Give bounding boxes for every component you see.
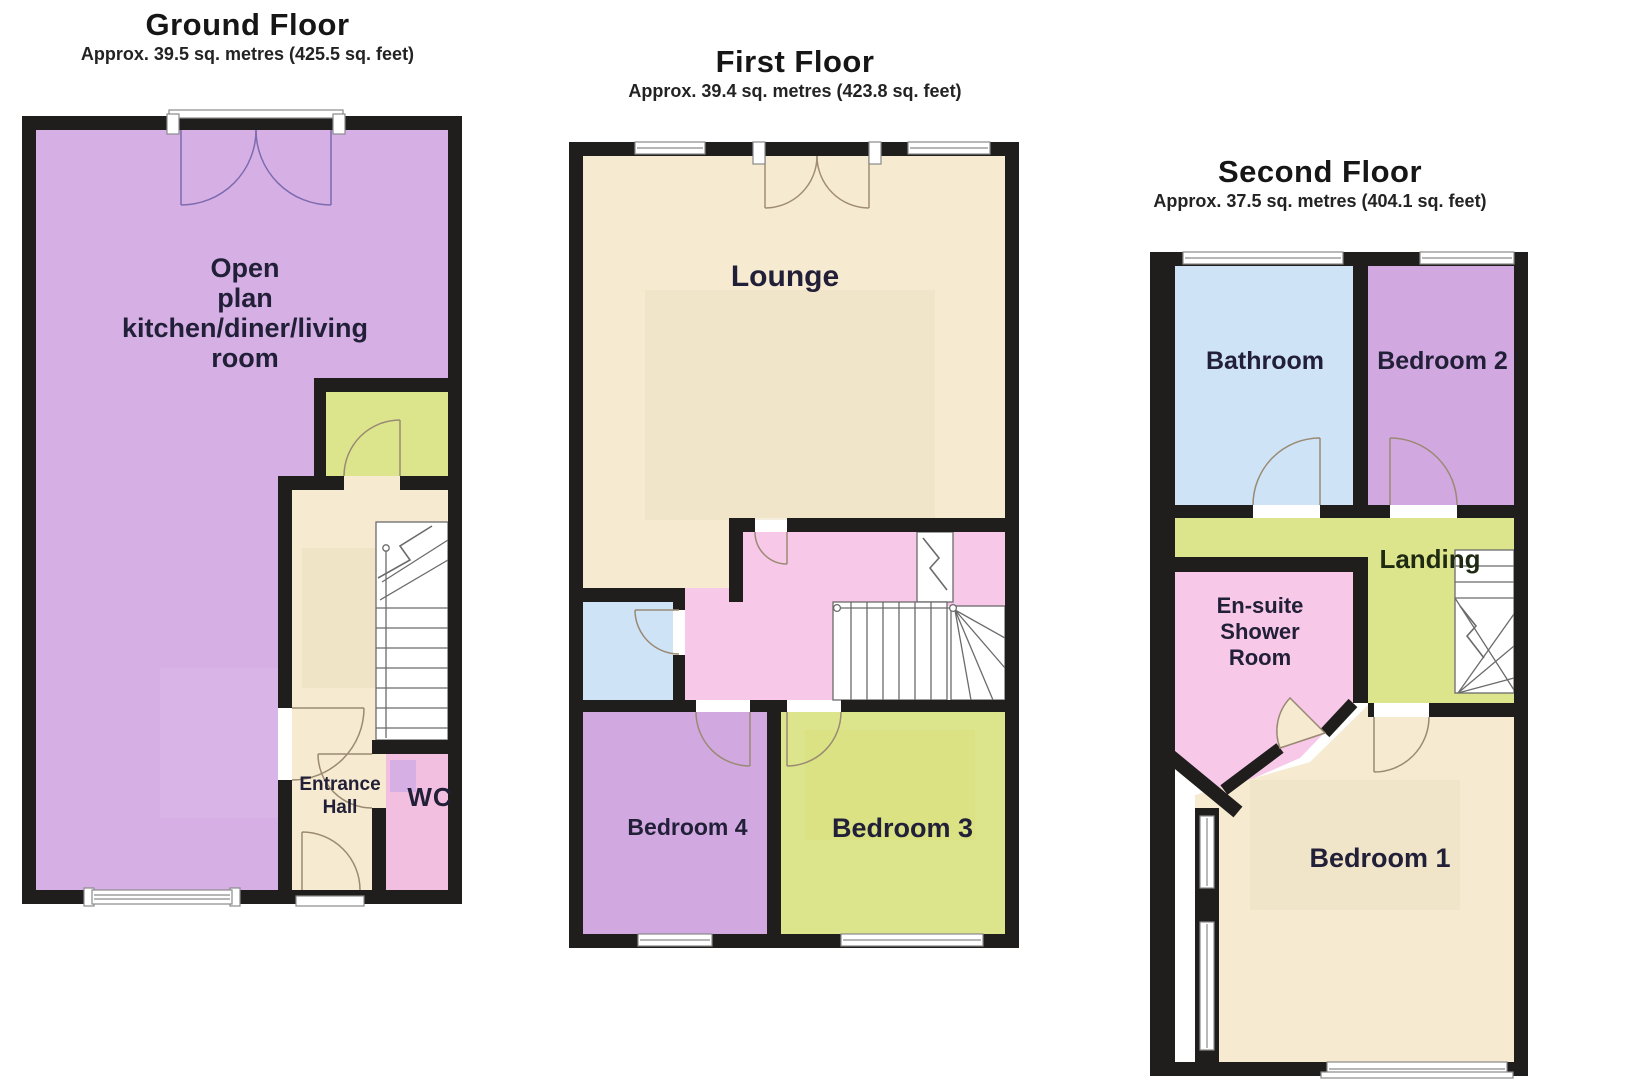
ground-floor-subtitle: Approx. 39.5 sq. metres (425.5 sq. feet) [20,42,475,66]
room-label-landing: Landing [1340,545,1520,574]
second-floor-wall-stub [1196,894,1218,916]
ensuite-line3: Room [1185,645,1335,671]
room-label-entrance-hall: Entrance Hall [270,773,410,819]
room-label-bedroom1: Bedroom 1 [1290,843,1470,873]
room-label-wc: WC [390,783,470,812]
first-floor-title: First Floor [565,45,1025,79]
room-label-bathroom: Bathroom [1175,347,1355,375]
open-plan-line3: kitchen/diner/living [30,313,460,343]
open-plan-line4: room [30,343,460,373]
ground-floor-stairs [376,522,448,740]
room-label-ensuite: En-suite Shower Room [1185,593,1335,671]
entrance-hall-line1: Entrance [270,773,410,796]
room-label-bedroom2: Bedroom 2 [1355,347,1530,375]
ensuite-line2: Shower [1185,619,1335,645]
first-floor-section: First Floor Approx. 39.4 sq. metres (423… [565,45,1025,965]
room-label-open-plan: Open plan kitchen/diner/living room [30,253,460,373]
first-floor-subtitle: Approx. 39.4 sq. metres (423.8 sq. feet) [565,79,1025,103]
room-label-bedroom3: Bedroom 3 [795,813,1010,843]
second-floor-title: Second Floor [1100,155,1540,189]
ground-floor-section: Ground Floor Approx. 39.5 sq. metres (42… [20,8,475,908]
entrance-hall-line2: Hall [270,796,410,819]
room-label-bedroom4: Bedroom 4 [605,815,770,841]
room-label-lounge: Lounge [645,260,925,294]
ground-floor-title: Ground Floor [20,8,475,42]
ensuite-line1: En-suite [1185,593,1335,619]
second-floor-subtitle: Approx. 37.5 sq. metres (404.1 sq. feet) [1100,189,1540,213]
second-floor-section: Second Floor Approx. 37.5 sq. metres (40… [1100,155,1540,1080]
floorplan-page: Ground Floor Approx. 39.5 sq. metres (42… [0,0,1633,1080]
open-plan-line1: Open [30,253,460,283]
open-plan-line2: plan [30,283,460,313]
